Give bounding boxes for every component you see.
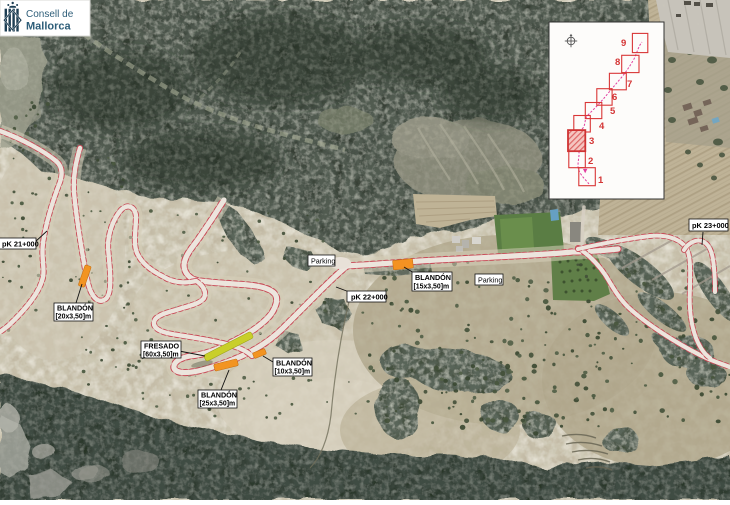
svg-text:FRESADO: FRESADO [144, 342, 180, 351]
svg-text:1: 1 [598, 175, 604, 186]
svg-text:7: 7 [627, 79, 632, 90]
svg-text:Parking: Parking [311, 257, 335, 266]
svg-text:[15x3,50]m: [15x3,50]m [414, 284, 450, 291]
svg-text:[20x3,50]m: [20x3,50]m [56, 314, 92, 321]
svg-text:BLANDÓN: BLANDÓN [415, 273, 451, 282]
svg-text:[10x3,50]m: [10x3,50]m [275, 369, 311, 376]
svg-text:2: 2 [588, 156, 593, 167]
svg-text:3: 3 [589, 136, 594, 147]
svg-text:4: 4 [599, 121, 605, 132]
svg-text:[25x3,50]m: [25x3,50]m [200, 401, 236, 408]
svg-text:9: 9 [621, 38, 626, 49]
svg-text:6: 6 [612, 92, 617, 103]
svg-text:pK 21+000: pK 21+000 [2, 240, 39, 249]
svg-text:Parking: Parking [478, 276, 502, 285]
svg-text:pK 22+000: pK 22+000 [351, 293, 388, 302]
svg-text:pK 23+000: pK 23+000 [692, 221, 729, 230]
svg-text:BLANDÓN: BLANDÓN [57, 304, 93, 313]
svg-text:8: 8 [615, 57, 620, 68]
svg-text:Mallorca: Mallorca [26, 21, 72, 33]
svg-text:BLANDÓN: BLANDÓN [201, 391, 237, 400]
svg-text:5: 5 [610, 106, 616, 117]
svg-text:[60x3,50]m: [60x3,50]m [143, 352, 179, 359]
svg-text:Consell de: Consell de [26, 9, 74, 20]
svg-text:BLANDÓN: BLANDÓN [276, 359, 312, 368]
